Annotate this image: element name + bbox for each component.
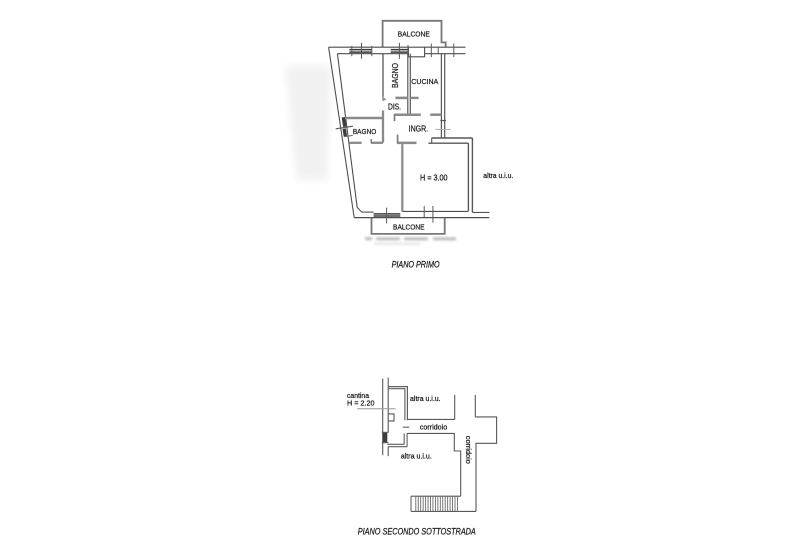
svg-text:corridoio: corridoio: [420, 423, 448, 432]
svg-text:altra u.i.u.: altra u.i.u.: [401, 452, 432, 461]
svg-text:altra u.i.u.: altra u.i.u.: [483, 171, 513, 180]
svg-text:PIANO PRIMO: PIANO PRIMO: [392, 259, 440, 269]
svg-text:INGR.: INGR.: [409, 125, 429, 134]
svg-text:PIANO SECONDO SOTTOSTRADA: PIANO SECONDO SOTTOSTRADA: [358, 527, 476, 537]
svg-text:CUCINA: CUCINA: [411, 77, 439, 86]
svg-text:BAGNO: BAGNO: [353, 127, 377, 136]
svg-text:altra u.i.u.: altra u.i.u.: [410, 394, 441, 403]
svg-text:BALCONE: BALCONE: [398, 29, 430, 38]
svg-text:BALCONE: BALCONE: [393, 222, 425, 231]
svg-text:H = 3.00: H = 3.00: [420, 174, 448, 183]
svg-text:BAGNO: BAGNO: [391, 63, 400, 88]
svg-text:H = 2.20: H = 2.20: [347, 399, 375, 408]
svg-text:DIS.: DIS.: [388, 103, 401, 112]
svg-text:corridoio: corridoio: [464, 436, 473, 464]
